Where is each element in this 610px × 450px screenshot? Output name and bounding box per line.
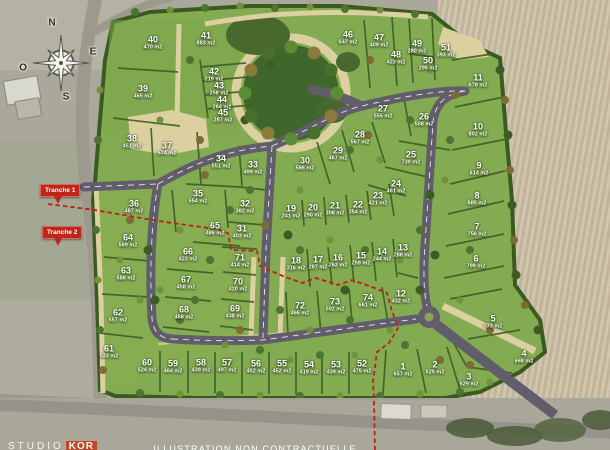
compass-south-label: S — [63, 92, 70, 103]
farm-building — [3, 76, 43, 121]
disclaimer-text: ILLUSTRATION NON CONTRACTUELLE — [135, 444, 375, 450]
compass-west-label: O — [19, 63, 27, 74]
studio-logo-suffix: KOR — [66, 441, 97, 450]
building — [381, 403, 412, 419]
studio-logo: STUDIOKOR — [8, 441, 97, 450]
map-graphics — [0, 0, 610, 450]
compass-north-label: N — [48, 18, 55, 29]
site-plan-illustration: 1657 m22525 m23529 m24668 m25773 m26799 … — [0, 0, 610, 450]
tranche-2-arrow — [54, 238, 62, 246]
tranche-1-arrow — [54, 196, 62, 204]
tranche-2-badge: Tranche 2 — [42, 226, 82, 239]
studio-logo-prefix: STUDIO — [8, 441, 64, 450]
compass-east-label: E — [90, 47, 97, 58]
building — [421, 405, 447, 418]
